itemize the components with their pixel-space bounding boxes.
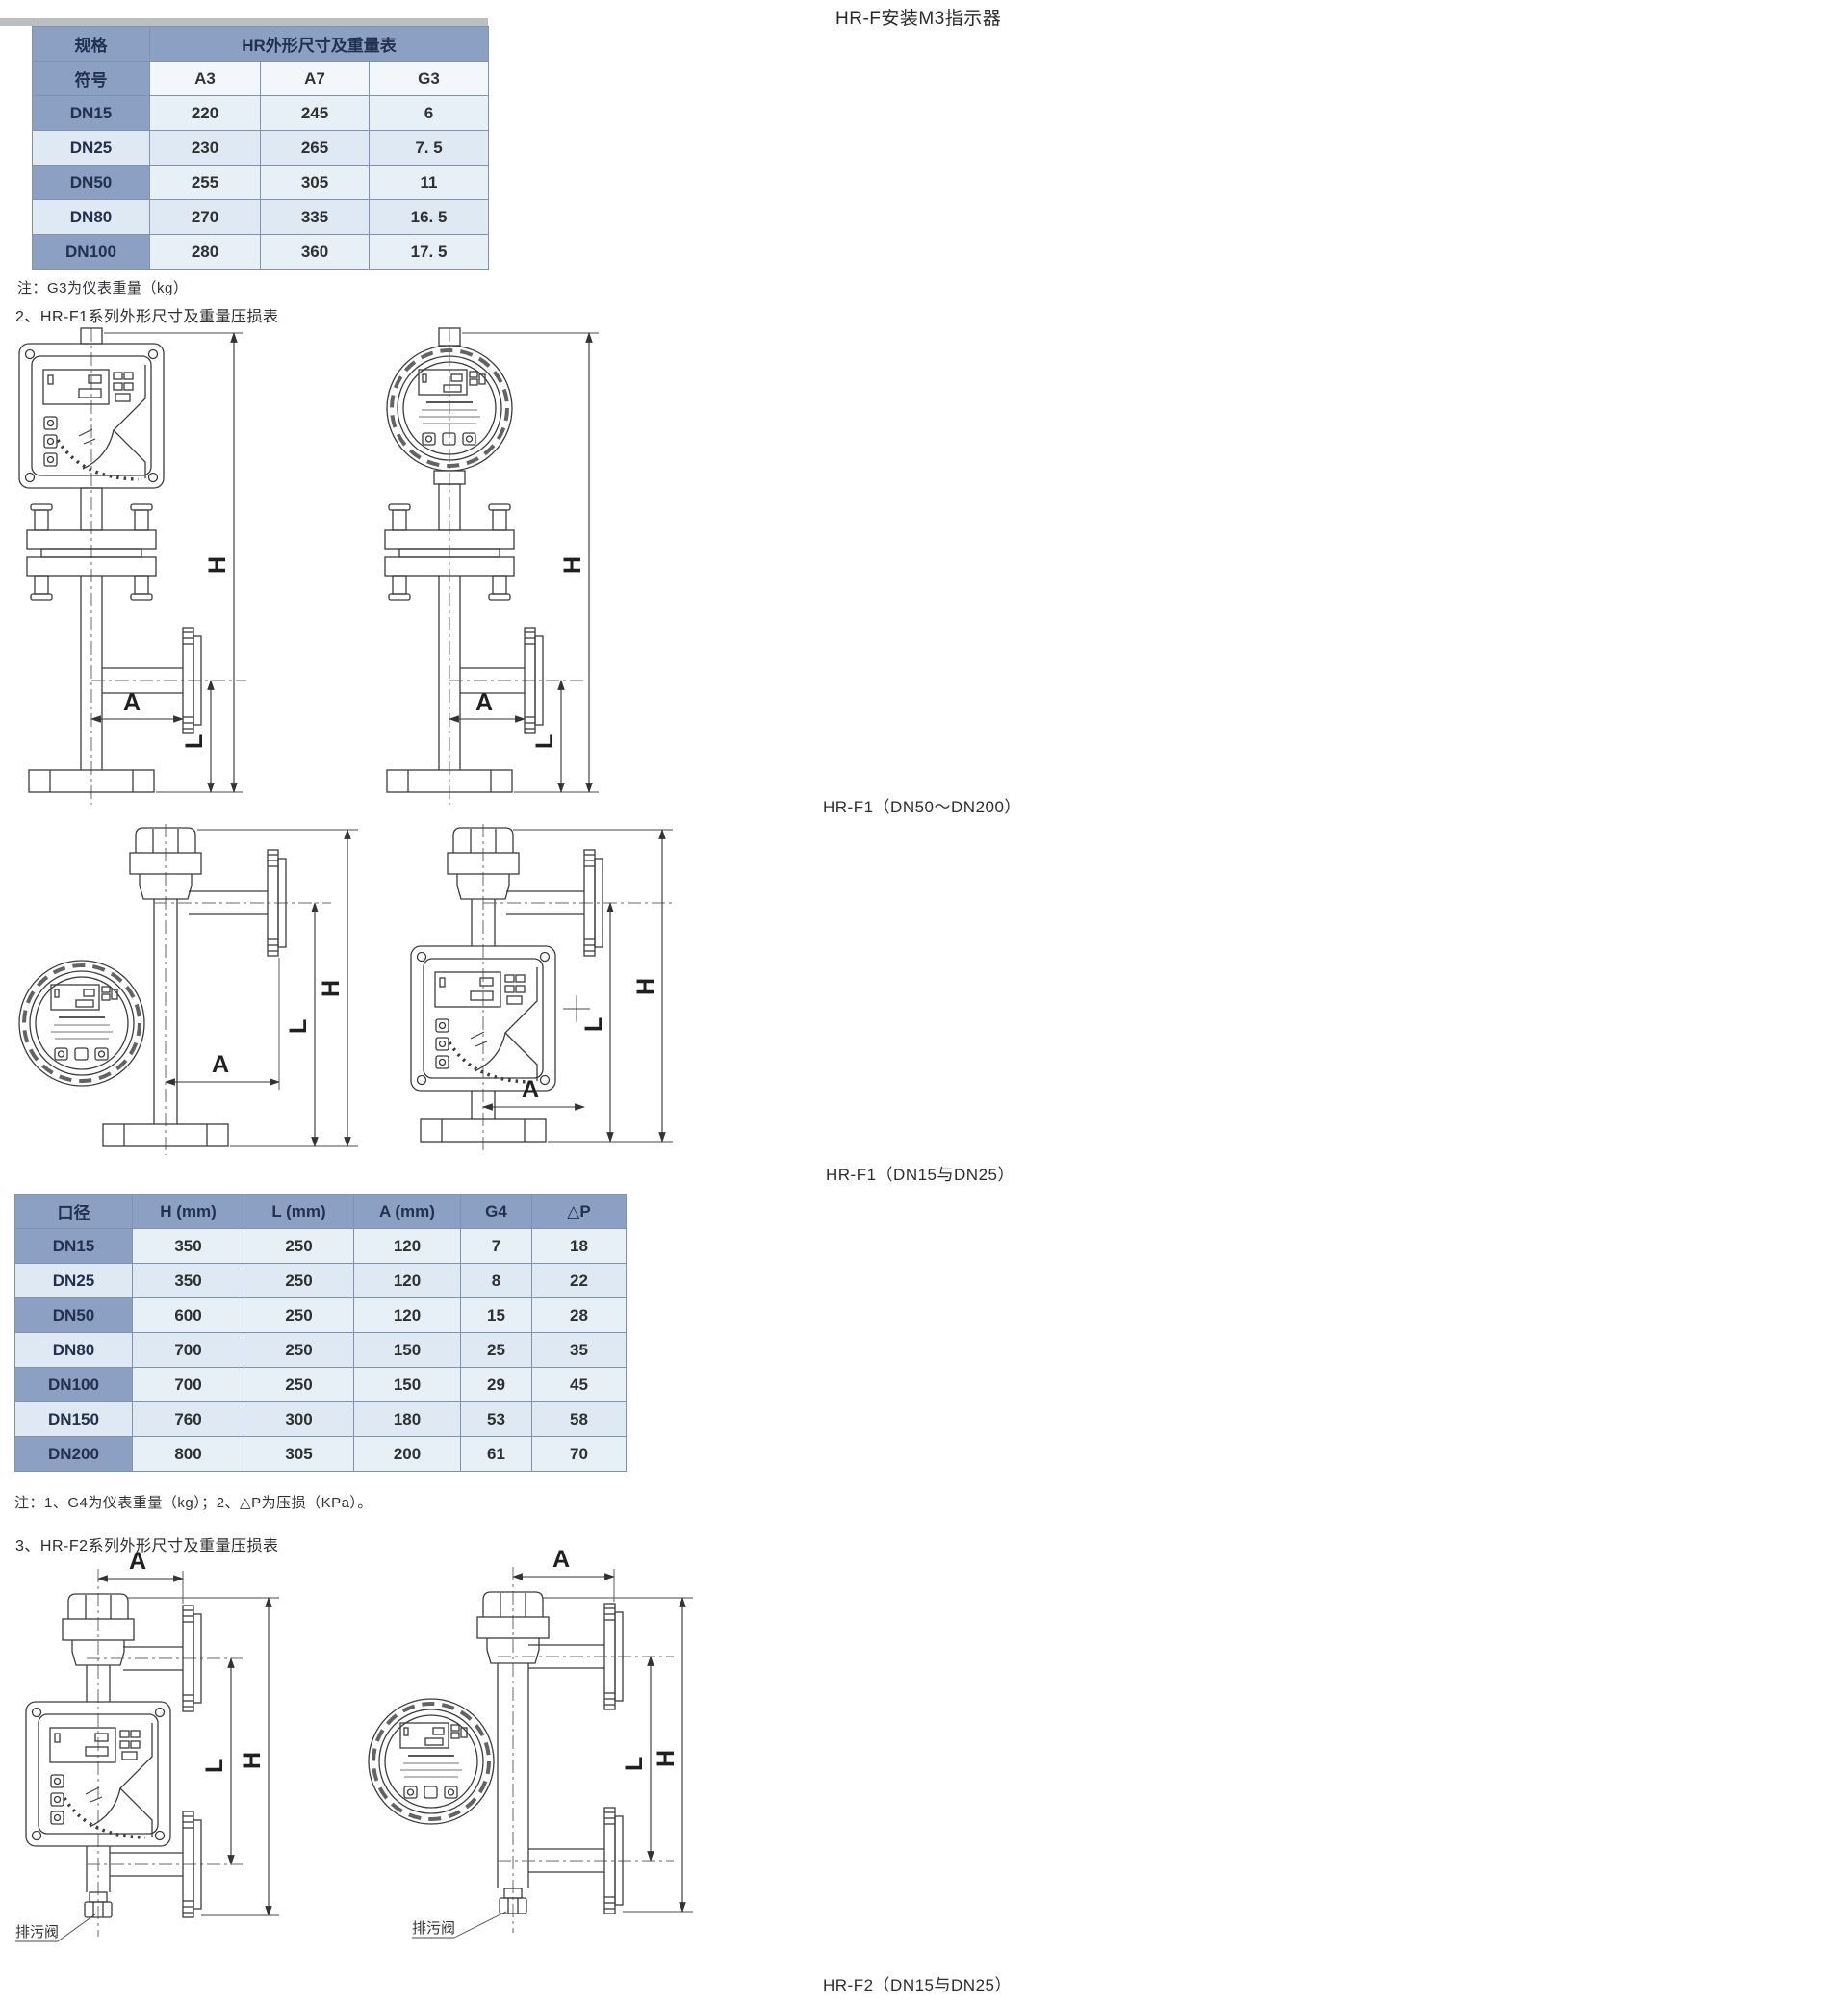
table-cell: 250 — [244, 1333, 354, 1368]
table-row: DN1007002501502945 — [15, 1368, 627, 1402]
table-cell: DN25 — [33, 131, 150, 166]
table-cell: 305 — [244, 1437, 354, 1472]
table-cell: 120 — [354, 1298, 461, 1333]
table-cell: DN25 — [15, 1264, 133, 1298]
corner-cell: 符号 — [33, 62, 150, 96]
table-cell: 18 — [532, 1229, 627, 1264]
table-note: 注：1、G4为仪表重量（kg）；2、△P为压损（KPa）。 — [14, 1492, 372, 1512]
table-cell: 265 — [261, 131, 370, 166]
table-cell: 22 — [532, 1264, 627, 1298]
dim-label-a: A — [552, 1546, 570, 1573]
drain-valve-label: 排污阀 — [412, 1920, 455, 1937]
table-cell: 250 — [244, 1264, 354, 1298]
table-cell: 150 — [354, 1368, 461, 1402]
column-header: A (mm) — [354, 1195, 461, 1229]
dim-label-l: L — [621, 1757, 648, 1771]
table-cell: 35 — [532, 1333, 627, 1368]
table-row: DN5025530511 — [33, 166, 489, 200]
table-cell: DN15 — [15, 1229, 133, 1264]
table-row: DN15350250120718 — [15, 1229, 627, 1264]
table-cell: 200 — [354, 1437, 461, 1472]
dim-label-a: A — [522, 1076, 539, 1103]
table-cell: 150 — [354, 1333, 461, 1368]
table-header-row: 口径 H (mm) L (mm) A (mm) G4 △P — [15, 1195, 627, 1229]
table-cell: 360 — [261, 235, 370, 270]
table-cell: 250 — [244, 1368, 354, 1402]
table-row: DN2008003052006170 — [15, 1437, 627, 1472]
technical-diagrams: H L A H L A — [0, 0, 1848, 2004]
column-header: G3 — [370, 62, 489, 96]
table-row: DN10028036017. 5 — [33, 235, 489, 270]
table-cell: 16. 5 — [370, 200, 489, 235]
table-row: DN152202456 — [33, 96, 489, 131]
table-cell: 600 — [133, 1298, 244, 1333]
table-cell: 700 — [133, 1368, 244, 1402]
diagram-f1-square-front: H L A — [19, 328, 246, 805]
diagram-caption-f1-large: HR-F1（DN50～DN200） — [823, 793, 1021, 817]
dim-label-h: H — [653, 1750, 680, 1767]
table-title-cell: HR外形尺寸及重量表 — [150, 27, 489, 62]
table-cell: 120 — [354, 1229, 461, 1264]
table-cell: 8 — [461, 1264, 532, 1298]
table-title-row: 规格 HR外形尺寸及重量表 — [33, 27, 489, 62]
table-cell: DN200 — [15, 1437, 133, 1472]
table-cell: 180 — [354, 1402, 461, 1437]
section-heading-f2: 3、HR-F2系列外形尺寸及重量压损表 — [15, 1532, 279, 1555]
document-page: { "page": { "top_title": "HR-F安装M3指示器" }… — [0, 0, 1848, 2004]
table-subheader-row: 符号 A3 A7 G3 — [33, 62, 489, 96]
table-cell: 220 — [150, 96, 261, 131]
table-row: DN25350250120822 — [15, 1264, 627, 1298]
diagram-f1-round-front: H L A — [385, 328, 599, 805]
diagram-f1-small-round: H L A — [19, 824, 358, 1155]
table-cell: DN15 — [33, 96, 150, 131]
table-cell: 61 — [461, 1437, 532, 1472]
table-row: DN506002501201528 — [15, 1298, 627, 1333]
hr-dimension-table: 规格 HR外形尺寸及重量表 符号 A3 A7 G3 DN152202456DN2… — [32, 26, 489, 270]
table-cell: 58 — [532, 1402, 627, 1437]
table-cell: 11 — [370, 166, 489, 200]
column-header: G4 — [461, 1195, 532, 1229]
table-cell: 335 — [261, 200, 370, 235]
table-cell: DN150 — [15, 1402, 133, 1437]
dim-label-h: H — [239, 1752, 266, 1769]
table-row: DN252302657. 5 — [33, 131, 489, 166]
dim-label-l: L — [201, 1759, 228, 1773]
table-cell: DN50 — [15, 1298, 133, 1333]
section-heading-f1: 2、HR-F1系列外形尺寸及重量压损表 — [15, 303, 279, 326]
table-row: DN8027033516. 5 — [33, 200, 489, 235]
table-cell: 45 — [532, 1368, 627, 1402]
table-cell: 17. 5 — [370, 235, 489, 270]
table-cell: 280 — [150, 235, 261, 270]
diagram-caption-f1-small: HR-F1（DN15与DN25） — [826, 1161, 1014, 1185]
column-header: H (mm) — [133, 1195, 244, 1229]
dim-label-l: L — [531, 734, 558, 749]
drain-valve-label: 排污阀 — [15, 1924, 59, 1940]
column-header: A7 — [261, 62, 370, 96]
table-cell: 350 — [133, 1264, 244, 1298]
table-cell: 7. 5 — [370, 131, 489, 166]
table-cell: 120 — [354, 1264, 461, 1298]
table-cell: 300 — [244, 1402, 354, 1437]
table-cell: 53 — [461, 1402, 532, 1437]
scan-edge-bar — [0, 18, 488, 26]
dim-label-l: L — [181, 734, 208, 749]
table-cell: 700 — [133, 1333, 244, 1368]
page-title: HR-F安装M3指示器 — [835, 4, 1001, 30]
table-cell: 28 — [532, 1298, 627, 1333]
table-cell: DN100 — [15, 1368, 133, 1402]
table-cell: DN80 — [33, 200, 150, 235]
column-header: A3 — [150, 62, 261, 96]
column-header: △P — [532, 1195, 627, 1229]
table-cell: 15 — [461, 1298, 532, 1333]
dim-label-l: L — [580, 1017, 607, 1032]
table-cell: 250 — [244, 1229, 354, 1264]
table-cell: 25 — [461, 1333, 532, 1368]
table-cell: 305 — [261, 166, 370, 200]
table-cell: 7 — [461, 1229, 532, 1264]
table-note: 注：G3为仪表重量（kg） — [17, 277, 188, 297]
table-cell: 29 — [461, 1368, 532, 1402]
dim-label-h: H — [559, 556, 586, 574]
column-header: 口径 — [15, 1195, 133, 1229]
table-cell: 230 — [150, 131, 261, 166]
dim-label-a: A — [123, 689, 141, 716]
table-cell: 70 — [532, 1437, 627, 1472]
table-cell: DN100 — [33, 235, 150, 270]
dim-label-a: A — [475, 689, 493, 716]
diagram-f2-round: A L H 排污阀 — [369, 1546, 693, 1938]
table-cell: 255 — [150, 166, 261, 200]
dim-label-h: H — [632, 978, 659, 995]
f1-dimension-table: 口径 H (mm) L (mm) A (mm) G4 △P DN15350250… — [14, 1194, 627, 1472]
diagram-caption-f2-small: HR-F2（DN15与DN25） — [823, 1971, 1012, 1995]
table-cell: 245 — [261, 96, 370, 131]
dim-label-a: A — [212, 1051, 229, 1078]
table-cell: 800 — [133, 1437, 244, 1472]
table-cell: 350 — [133, 1229, 244, 1264]
diagram-f2-square: A L H 排污阀 — [15, 1548, 279, 1941]
column-header: L (mm) — [244, 1195, 354, 1229]
diagram-f1-small-square: H L A — [411, 824, 674, 1153]
table-cell: 6 — [370, 96, 489, 131]
table-cell: 270 — [150, 200, 261, 235]
table-cell: 250 — [244, 1298, 354, 1333]
table-cell: 760 — [133, 1402, 244, 1437]
table-cell: DN80 — [15, 1333, 133, 1368]
dim-label-h: H — [204, 556, 231, 574]
table-cell: DN50 — [33, 166, 150, 200]
corner-cell: 规格 — [33, 27, 150, 62]
dim-label-l: L — [285, 1019, 312, 1034]
table-row: DN1507603001805358 — [15, 1402, 627, 1437]
table-row: DN807002501502535 — [15, 1333, 627, 1368]
dim-label-h: H — [318, 980, 345, 997]
